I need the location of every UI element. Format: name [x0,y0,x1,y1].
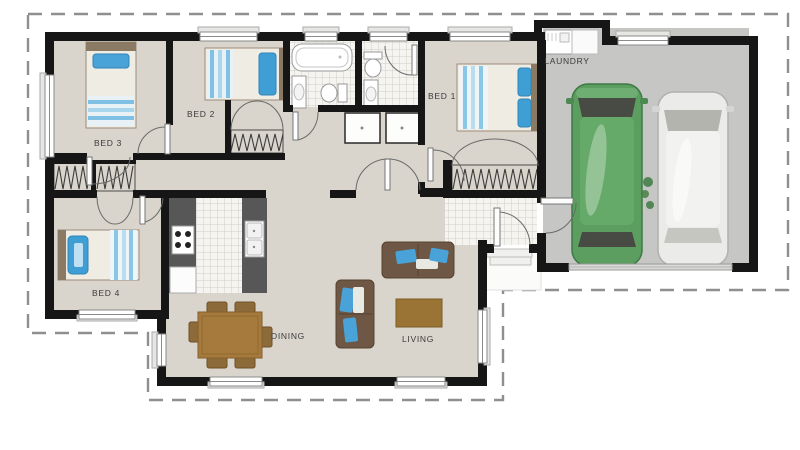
living-sofa-horizontal [382,242,454,278]
room-label-living: LIVING [402,334,434,344]
toilet-icon [321,84,347,102]
dining-table-set [189,302,272,368]
coffee-table [396,299,442,327]
room-label-bed1: BED 1 [428,91,456,101]
white-car [652,92,734,266]
green-car [566,84,648,266]
bathtub-icon [292,44,352,71]
laundry-tub-icon [545,30,598,54]
room-label-dining: DINING [271,331,305,341]
room-label-bed4: BED 4 [92,288,120,298]
bed2-single-bed [205,48,286,100]
linen-cupboard-icon [386,113,419,143]
room-label-bed2: BED 2 [187,109,215,119]
bed4-single-bed [58,230,139,280]
bed3-single-bed [86,42,136,128]
garage-door [569,264,732,270]
porch [481,249,541,290]
living-sofa-vertical [336,280,374,348]
floorplan-canvas: BED 3 BED 2 BED 1 BED 4 DINING LIVING LA… [0,0,800,450]
room-label-laundry: LAUNDRY [544,56,589,66]
vanity-sink-icon [292,76,306,108]
wc-vanity-icon [364,80,378,108]
room-label-bed3: BED 3 [94,138,122,148]
wc-toilet-icon [364,52,382,77]
fridge-icon [170,267,196,293]
floorplan-drawing [0,0,800,450]
stove-icon [172,226,194,254]
kitchen-tile-grid [196,198,242,293]
shower-cubicle-icon [345,113,380,143]
entry-tile-grid [445,198,537,245]
bed1-double-bed [457,64,538,131]
kitchen-sink-icon [245,221,264,257]
